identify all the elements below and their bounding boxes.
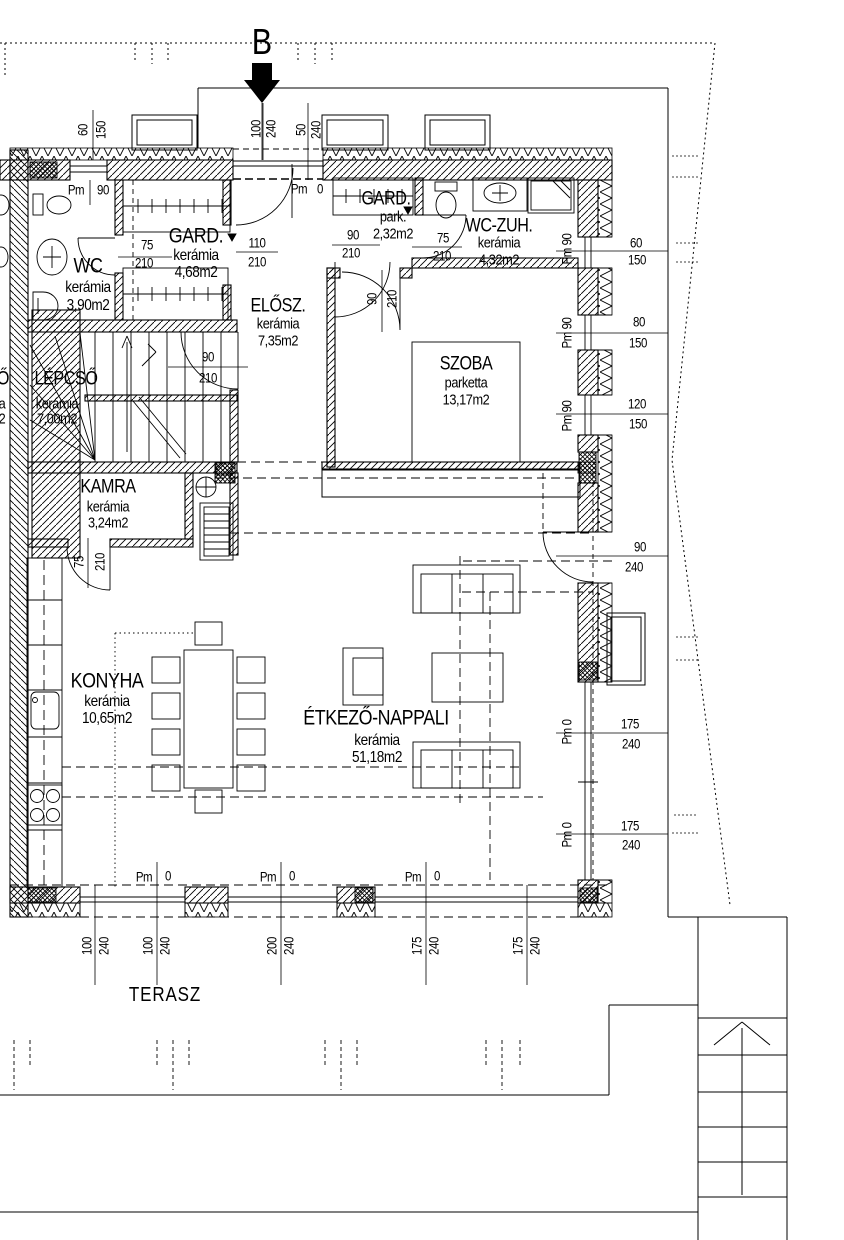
dashed-lines bbox=[10, 149, 612, 1090]
chair bbox=[152, 765, 180, 791]
furniture bbox=[152, 342, 520, 813]
chair bbox=[152, 693, 180, 719]
chair bbox=[195, 790, 222, 813]
sofa bbox=[413, 742, 520, 788]
wc-toilet-bowl bbox=[47, 196, 71, 214]
fixtures bbox=[0, 178, 574, 887]
chair bbox=[237, 729, 265, 755]
armchair bbox=[343, 648, 383, 705]
radiator bbox=[200, 503, 233, 560]
floor-plan: WCkerámia3,90m2GARD.kerámia4,68m2ELŐSZ.k… bbox=[0, 0, 844, 1240]
wardrobes bbox=[123, 178, 413, 320]
terrace-and-steps bbox=[0, 917, 787, 1240]
walls bbox=[0, 150, 612, 917]
crosshatch-piers bbox=[28, 162, 597, 902]
chair bbox=[152, 657, 180, 683]
chair bbox=[237, 693, 265, 719]
steps-up-arrow bbox=[714, 1022, 770, 1195]
kitchen-counter bbox=[27, 558, 62, 887]
section-arrow bbox=[244, 63, 280, 103]
wczuh-toilet-bowl bbox=[436, 192, 456, 218]
chair bbox=[237, 765, 265, 791]
coffee-table bbox=[432, 653, 503, 702]
bed bbox=[412, 342, 520, 462]
wczuh-toilet-tank bbox=[435, 182, 457, 191]
chair bbox=[195, 622, 222, 645]
sofa bbox=[413, 565, 520, 613]
wc-toilet-tank bbox=[33, 194, 43, 215]
chair bbox=[237, 657, 265, 683]
chair bbox=[152, 729, 180, 755]
plan-drawing bbox=[0, 0, 844, 1240]
